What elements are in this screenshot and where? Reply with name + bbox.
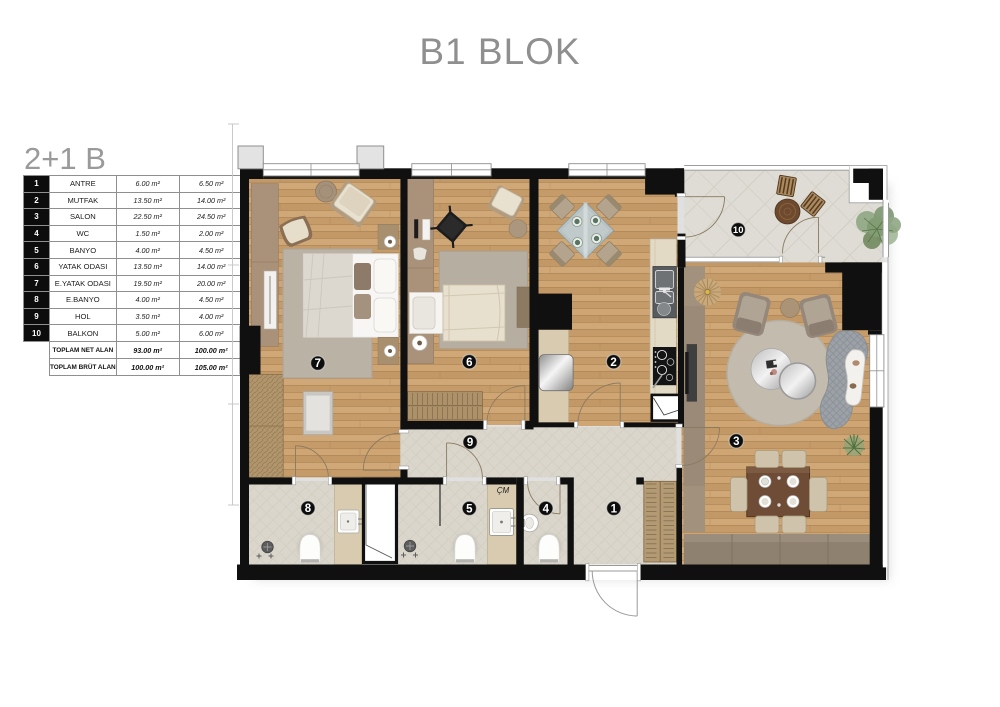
- svg-text:2: 2: [610, 357, 616, 369]
- svg-text:5: 5: [466, 503, 473, 515]
- svg-text:4: 4: [543, 503, 550, 515]
- svg-text:1: 1: [611, 503, 618, 515]
- svg-text:6: 6: [466, 357, 472, 369]
- svg-text:3: 3: [733, 436, 739, 448]
- svg-text:7: 7: [315, 358, 321, 370]
- svg-text:9: 9: [467, 437, 473, 449]
- svg-text:ÇM: ÇM: [497, 486, 510, 495]
- svg-text:8: 8: [305, 503, 312, 515]
- svg-text:10: 10: [733, 225, 744, 236]
